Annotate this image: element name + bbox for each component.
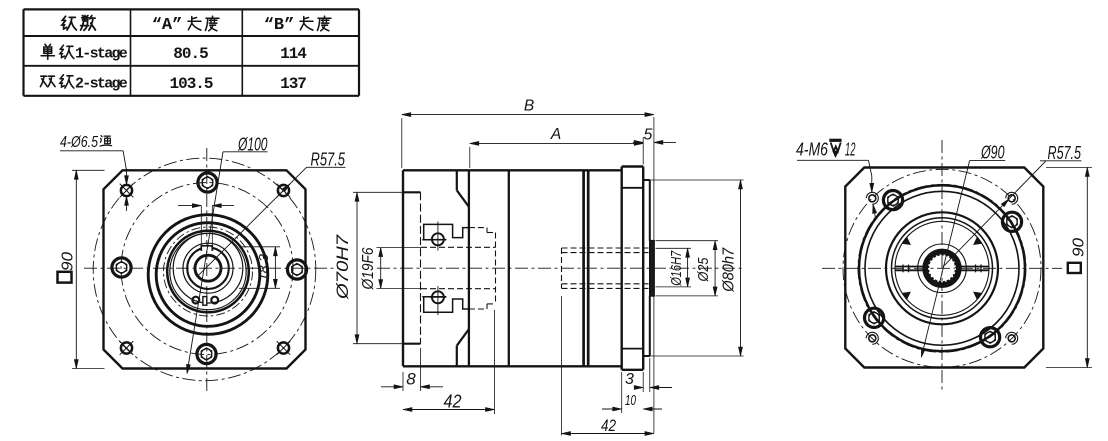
svg-text:R57.5: R57.5 bbox=[1048, 142, 1082, 163]
svg-text:42: 42 bbox=[601, 416, 616, 435]
svg-text:8: 8 bbox=[406, 370, 416, 389]
svg-text:12: 12 bbox=[845, 138, 856, 159]
svg-text:4-M6: 4-M6 bbox=[796, 138, 829, 159]
svg-text:Ø19F6: Ø19F6 bbox=[360, 247, 377, 290]
svg-text:Ø80h7: Ø80h7 bbox=[721, 247, 738, 293]
svg-text:Ø90: Ø90 bbox=[980, 142, 1005, 163]
svg-text:103.5: 103.5 bbox=[169, 75, 212, 93]
svg-text:3: 3 bbox=[625, 371, 634, 388]
svg-text:A: A bbox=[550, 126, 561, 143]
svg-text:Ø70H7: Ø70H7 bbox=[333, 234, 352, 300]
svg-text:10: 10 bbox=[625, 392, 636, 409]
svg-text:1-stage: 1-stage bbox=[75, 46, 128, 63]
svg-text:Ø25: Ø25 bbox=[695, 257, 712, 282]
svg-text:B: B bbox=[524, 98, 534, 115]
svg-text:90: 90 bbox=[60, 252, 77, 271]
svg-text:80.5: 80.5 bbox=[173, 45, 208, 63]
svg-text:4-Ø6.5: 4-Ø6.5 bbox=[60, 134, 98, 151]
svg-text:42: 42 bbox=[444, 392, 462, 412]
svg-text:18.3: 18.3 bbox=[256, 253, 271, 281]
svg-text:137: 137 bbox=[280, 75, 306, 93]
svg-text:“B”: “B” bbox=[264, 16, 295, 35]
svg-text:Ø100: Ø100 bbox=[237, 133, 268, 154]
svg-text:114: 114 bbox=[280, 45, 307, 63]
svg-text:R57.5: R57.5 bbox=[311, 149, 346, 170]
svg-text:2-stage: 2-stage bbox=[75, 76, 128, 93]
svg-text:Ø16H7: Ø16H7 bbox=[668, 250, 685, 286]
svg-text:“A”: “A” bbox=[152, 16, 183, 35]
svg-text:90: 90 bbox=[1071, 238, 1088, 257]
svg-text:5: 5 bbox=[644, 127, 653, 144]
